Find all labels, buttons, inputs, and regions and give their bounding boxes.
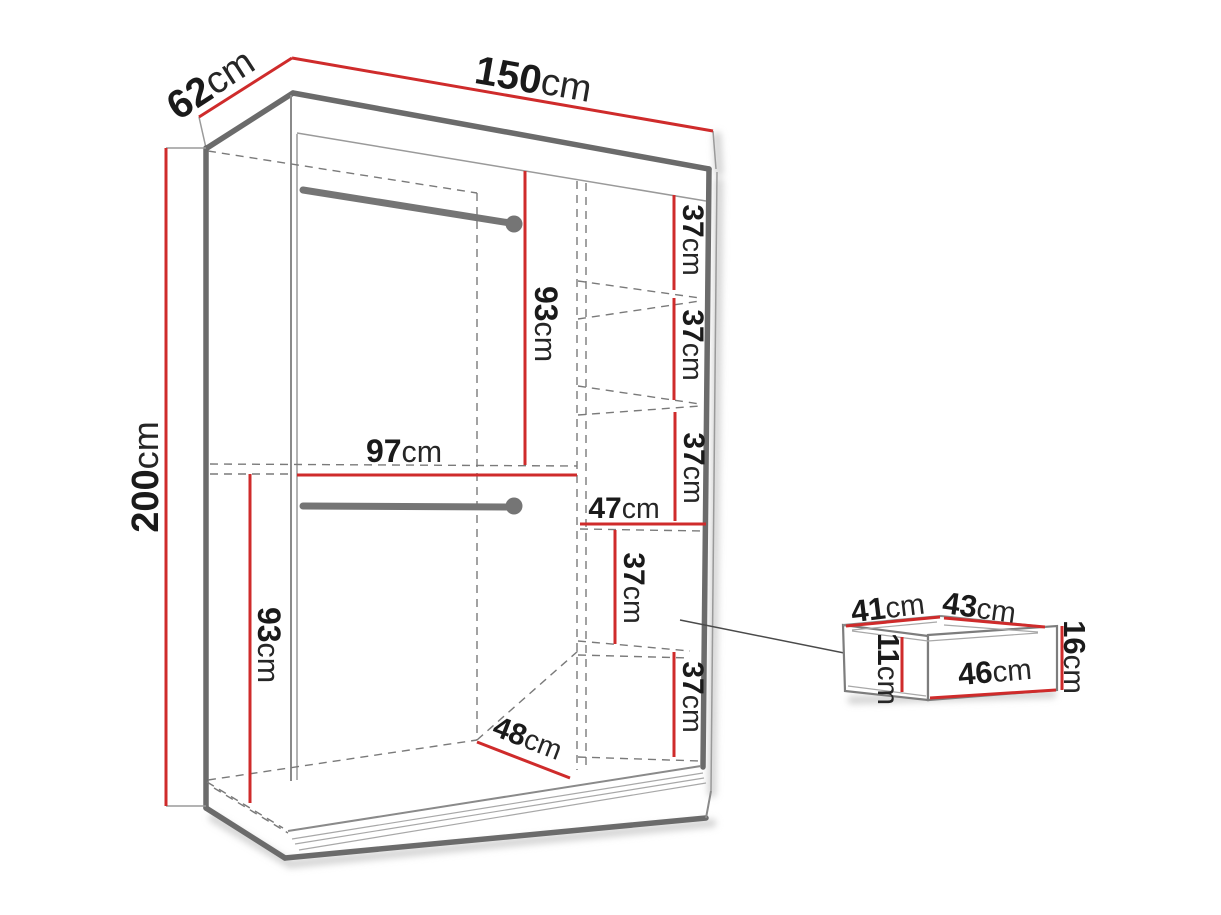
label-width: 150cm [472,48,595,112]
label-shelf5: 37cm [676,661,709,732]
label-lower-hang: 93cm [251,607,287,683]
interior-dashed-lines [207,151,702,833]
label-shelf1: 37cm [676,204,709,275]
wardrobe-dimension-diagram: 62cm 150cm 200cm 93cm 97cm 93cm 37cm 37c… [0,0,1221,915]
label-drawer-46: 46cm [957,651,1034,692]
dimension-lines [166,58,713,806]
shelf1-front-dashed [578,281,700,298]
shelf2-back-dashed [578,406,700,415]
carcass-top-front-edge [293,93,709,169]
shelf2-front-dashed [578,386,700,404]
label-drawer-43: 43cm [940,585,1018,630]
label-depth: 62cm [159,40,263,129]
label-floor-depth: 48cm [488,710,566,766]
shadow-top-right [717,136,719,172]
upper-rail [303,190,510,223]
extension-lines [166,148,206,806]
label-shelf4: 37cm [617,552,650,623]
label-inner-width: 97cm [366,433,442,469]
label-upper-hang: 93cm [528,286,564,362]
label-shelf-width: 47cm [588,492,659,525]
label-drawer-11: 11cm [871,633,906,705]
upper-rail-end [506,216,523,233]
floor-front-edge [288,766,701,831]
interior-ceiling-line [297,133,706,201]
plinth-bottom-edge [285,818,706,858]
shelf3-dashed [580,529,702,531]
floor-back-dashed [208,740,477,780]
lower-rail [303,506,510,507]
shelf4-front-dashed [578,641,690,651]
label-shelf3: 37cm [677,432,710,503]
label-shelf2: 37cm [676,309,709,380]
top-panel-left-edge [199,117,206,148]
column-floor-dashed [578,757,700,761]
ceiling-back-dashed [208,151,477,193]
plinth-left-edge [206,808,285,858]
lower-rail-end [506,498,523,515]
label-drawer-16: 16cm [1057,620,1092,694]
label-drawer-41: 41cm [849,586,926,630]
diagram-canvas: 62cm 150cm 200cm 93cm 97cm 93cm 37cm 37c… [0,0,1221,915]
drawer-leader-line [680,620,869,658]
label-height: 200cm [125,421,168,533]
